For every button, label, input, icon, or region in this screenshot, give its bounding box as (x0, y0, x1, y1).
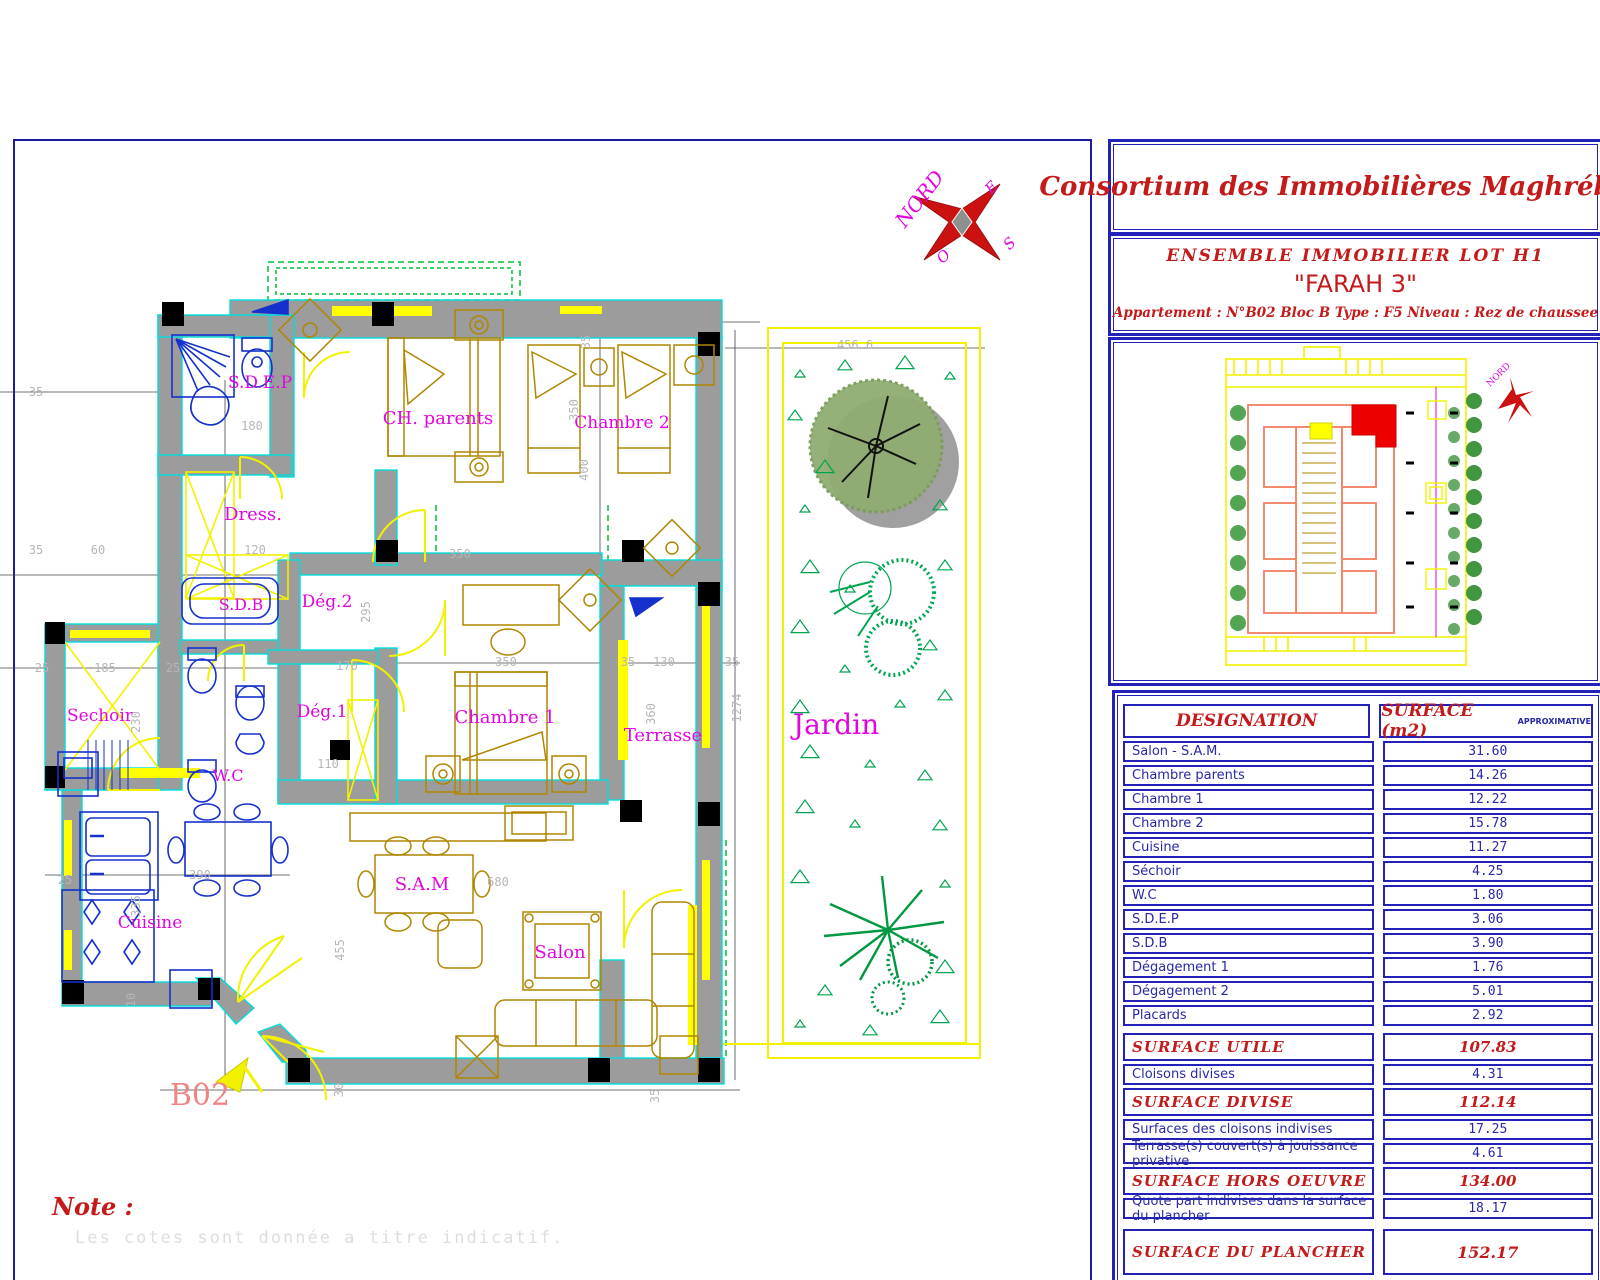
unit-label: B02 (170, 1078, 230, 1113)
shrub-triangle-icon (800, 505, 810, 512)
shrub-triangle-icon (933, 820, 947, 830)
shrub-triangle-icon (931, 1010, 949, 1023)
shrub-triangle-icon (938, 690, 952, 700)
plan-masse-drawing: NORD (1114, 343, 1597, 680)
tree-icon (1448, 431, 1460, 443)
table-row: Dégagement 11.76 (1123, 957, 1593, 978)
company-title: Consortium des Immobilières Maghrébines (1111, 142, 1600, 232)
surface-value-cell: 18.17 (1383, 1198, 1593, 1219)
surface-value-cell: 3.90 (1383, 933, 1593, 954)
room-label: S.D.E.P (228, 373, 292, 393)
shrub-triangle-icon (838, 360, 852, 370)
dimension-label: 350 (449, 547, 471, 561)
shrub-triangle-icon (895, 700, 905, 707)
dimension-label: 110 (317, 757, 339, 771)
table-row: S.D.B3.90 (1123, 933, 1593, 954)
designation-cell: Chambre parents (1123, 765, 1374, 786)
surface-value-cell: 12.22 (1383, 789, 1593, 810)
tree-icon (1448, 575, 1460, 587)
room-label: Salon (534, 942, 586, 963)
dimension-label: 25 (58, 873, 72, 887)
designation-cell: Cloisons divises (1123, 1064, 1374, 1085)
table-row: SURFACE UTILE107.83 (1123, 1033, 1593, 1061)
shrub-triangle-icon (945, 372, 955, 379)
surface-value-cell: 17.25 (1383, 1119, 1593, 1140)
shrub-triangle-icon (795, 1020, 805, 1027)
table-row: Terrasse(s) couvert(s) à jouissance priv… (1123, 1143, 1593, 1164)
surface-value-cell: 1.80 (1383, 885, 1593, 906)
room-label: Dress. (224, 504, 282, 525)
shrub-triangle-icon (940, 880, 950, 887)
table-row: Quote part indivises dans la surface du … (1123, 1198, 1593, 1219)
dimension-label: 230 (129, 711, 143, 733)
shrub-triangle-icon (796, 800, 814, 813)
tree-icon (1448, 479, 1460, 491)
room-label: W.C (213, 766, 244, 785)
shrub-triangle-icon (801, 560, 819, 573)
room-label: Chambre 2 (574, 413, 670, 433)
dimension-label: 1274 (730, 694, 744, 723)
dimension-label: 35 (29, 385, 43, 399)
dimension-label: 25 (166, 661, 180, 675)
tree-icon (1466, 609, 1482, 625)
tree-icon (1466, 513, 1482, 529)
designation-cell: S.D.E.P (1123, 909, 1374, 930)
dimension-label: 10 (124, 993, 138, 1007)
room-label: Cuisine (118, 913, 183, 933)
designation-cell: SURFACE DU PLANCHER (1123, 1229, 1374, 1275)
shrub-triangle-icon (938, 560, 952, 570)
designation-cell: Dégagement 2 (1123, 981, 1374, 1002)
designation-cell: Placards (1123, 1005, 1374, 1026)
table-row: SURFACE HORS OEUVRE134.00 (1123, 1167, 1593, 1195)
table-row: Séchoir4.25 (1123, 861, 1593, 882)
dimension-label: 35 (621, 655, 635, 669)
project-ensemble-line: ENSEMBLE IMMOBILIER LOT H1 (1111, 246, 1600, 266)
project-info-box: ENSEMBLE IMMOBILIER LOT H1 "FARAH 3" App… (1108, 233, 1600, 336)
room-label: CH. parents (383, 408, 494, 429)
designation-cell: Surfaces des cloisons indivises (1123, 1119, 1374, 1140)
tree-icon (1230, 525, 1246, 541)
compass-north-label: NORD (889, 166, 949, 233)
dimension-label: 60 (91, 543, 105, 557)
company-title-box: Consortium des Immobilières Maghrébines (1108, 139, 1600, 235)
tree-icon (1230, 405, 1246, 421)
tree-icon (1448, 599, 1460, 611)
table-header-row: DESIGNATION SURFACE (m2) APPROXIMATIVE (1123, 704, 1593, 738)
surface-value-cell: 5.01 (1383, 981, 1593, 1002)
table-row: S.D.E.P3.06 (1123, 909, 1593, 930)
dimension-label: 25 (35, 661, 49, 675)
tree-icon (1230, 585, 1246, 601)
plan-masse-box: NORD PLAN MASSE (1108, 337, 1600, 686)
room-label: S.A.M (395, 874, 450, 895)
designation-cell: W.C (1123, 885, 1374, 906)
shrub-triangle-icon (865, 760, 875, 767)
table-row: Surfaces des cloisons indivises17.25 (1123, 1119, 1593, 1140)
designation-cell: Salon - S.A.M. (1123, 741, 1374, 762)
tree-icon (1230, 495, 1246, 511)
tree-icon (1466, 537, 1482, 553)
tree-icon (1448, 623, 1460, 635)
room-label: S.D.B (219, 595, 264, 614)
surface-value-cell: 31.60 (1383, 741, 1593, 762)
room-label: Chambre 1 (454, 707, 555, 728)
surface-value-cell: 4.61 (1383, 1143, 1593, 1164)
dimension-label: 180 (241, 419, 263, 433)
drawing-sheet: S.D.E.PDress.CH. parentsChambre 2S.D.BDé… (0, 0, 1600, 1280)
shrub-triangle-icon (896, 356, 914, 369)
designation-cell: Chambre 1 (1123, 789, 1374, 810)
shrub-triangle-icon (791, 620, 809, 633)
shrub-triangle-icon (863, 1025, 877, 1035)
surface-value-cell: 112.14 (1383, 1088, 1593, 1116)
tree-icon (1466, 561, 1482, 577)
designation-cell: Terrasse(s) couvert(s) à jouissance priv… (1123, 1143, 1374, 1164)
designation-cell: Chambre 2 (1123, 813, 1374, 834)
surface-value-cell: 107.83 (1383, 1033, 1593, 1061)
surface-value-cell: 134.00 (1383, 1167, 1593, 1195)
dimension-label: 35 (725, 655, 739, 669)
designation-cell: Quote part indivises dans la surface du … (1123, 1198, 1374, 1219)
surface-table: DESIGNATION SURFACE (m2) APPROXIMATIVE S… (1123, 701, 1593, 1275)
dimension-label: 400 (577, 459, 591, 481)
surface-value-cell: 2.92 (1383, 1005, 1593, 1026)
shrub-triangle-icon (791, 870, 809, 883)
table-row: Chambre 215.78 (1123, 813, 1593, 834)
shrub-triangle-icon (936, 960, 954, 973)
apartment-info-line: Appartement : N°B02 Bloc B Type : F5 Niv… (1111, 305, 1600, 321)
mini-compass-icon (1498, 377, 1534, 423)
table-row: Cloisons divises4.31 (1123, 1064, 1593, 1085)
mini-compass-north-label: NORD (1485, 361, 1513, 389)
surface-value-cell: 11.27 (1383, 837, 1593, 858)
surface-value-cell: 4.31 (1383, 1064, 1593, 1085)
surface-value-cell: 3.06 (1383, 909, 1593, 930)
tree-icon (1230, 465, 1246, 481)
project-name: "FARAH 3" (1111, 270, 1600, 298)
designation-cell: Séchoir (1123, 861, 1374, 882)
designation-cell: SURFACE DIVISE (1123, 1088, 1374, 1116)
table-row: W.C1.80 (1123, 885, 1593, 906)
shrub-triangle-icon (850, 820, 860, 827)
dimension-label: 170 (336, 659, 358, 673)
shrub-triangle-icon (918, 770, 932, 780)
shrub-triangle-icon (923, 640, 937, 650)
table-row: Chambre 112.22 (1123, 789, 1593, 810)
table-row: Salon - S.A.M.31.60 (1123, 741, 1593, 762)
table-row: SURFACE DIVISE112.14 (1123, 1088, 1593, 1116)
table-row: Dégagement 25.01 (1123, 981, 1593, 1002)
dimension-label: 390 (189, 868, 211, 882)
surface-value-cell: 1.76 (1383, 957, 1593, 978)
surface-header: SURFACE (m2) APPROXIMATIVE (1379, 704, 1593, 738)
surface-value-cell: 15.78 (1383, 813, 1593, 834)
tree-icon (1230, 615, 1246, 631)
shrub-triangle-icon (795, 370, 805, 377)
tree-icon (1466, 441, 1482, 457)
tree-icon (1466, 417, 1482, 433)
dimension-label: 30 (332, 1083, 346, 1097)
tree-icon (1230, 555, 1246, 571)
table-row: Cuisine11.27 (1123, 837, 1593, 858)
shrub-triangle-icon (840, 665, 850, 672)
room-label: Terrasse (624, 725, 702, 746)
tree-icon (1466, 393, 1482, 409)
designation-cell: SURFACE UTILE (1123, 1033, 1374, 1061)
designation-cell: Dégagement 1 (1123, 957, 1374, 978)
dimension-label: 350 (567, 399, 581, 421)
surface-value-cell: 152.17 (1383, 1229, 1593, 1275)
designation-header: DESIGNATION (1123, 704, 1370, 738)
dimension-label: 680 (487, 875, 509, 889)
shrub-triangle-icon (818, 985, 832, 995)
tree-icon (1466, 585, 1482, 601)
dimension-label: 35 (579, 335, 593, 349)
dimension-label: 350 (495, 655, 517, 669)
shrub-triangle-icon (788, 410, 802, 420)
designation-cell: Cuisine (1123, 837, 1374, 858)
surface-table-box: DESIGNATION SURFACE (m2) APPROXIMATIVE S… (1112, 690, 1600, 1280)
dimension-label: 35 (29, 543, 43, 557)
table-row: SURFACE DU PLANCHER152.17 (1123, 1229, 1593, 1275)
dimension-label: 120 (244, 543, 266, 557)
table-row: Placards2.92 (1123, 1005, 1593, 1026)
tree-icon (1448, 455, 1460, 467)
tree-icon (1448, 527, 1460, 539)
tree-icon (1466, 465, 1482, 481)
room-label: Dég.2 (302, 592, 353, 612)
dimension-label: 456.6 (837, 338, 873, 352)
note-text: Les cotes sont donnée a titre indicatif. (75, 1228, 564, 1248)
tree-icon (1448, 551, 1460, 563)
dimension-label: 360 (644, 703, 658, 725)
note-title: Note : (52, 1192, 134, 1221)
surface-value-cell: 14.26 (1383, 765, 1593, 786)
dimension-label: 455 (333, 939, 347, 961)
dimension-label: 295 (359, 601, 373, 623)
tree-icon (1230, 435, 1246, 451)
dimension-label: 185 (94, 661, 116, 675)
shrub-triangle-icon (801, 745, 819, 758)
dimension-label: 35 (648, 1089, 662, 1103)
designation-cell: SURFACE HORS OEUVRE (1123, 1167, 1374, 1195)
dimension-label: 335 (129, 895, 143, 917)
compass-south-label: S (999, 233, 1019, 253)
tree-icon (1466, 489, 1482, 505)
table-row: Chambre parents14.26 (1123, 765, 1593, 786)
jardin-trees (810, 380, 959, 1014)
room-label: Dég.1 (297, 702, 348, 722)
dimension-label: 130 (653, 655, 675, 669)
room-label: Sechoir (67, 706, 134, 726)
surface-value-cell: 4.25 (1383, 861, 1593, 882)
designation-cell: S.D.B (1123, 933, 1374, 954)
